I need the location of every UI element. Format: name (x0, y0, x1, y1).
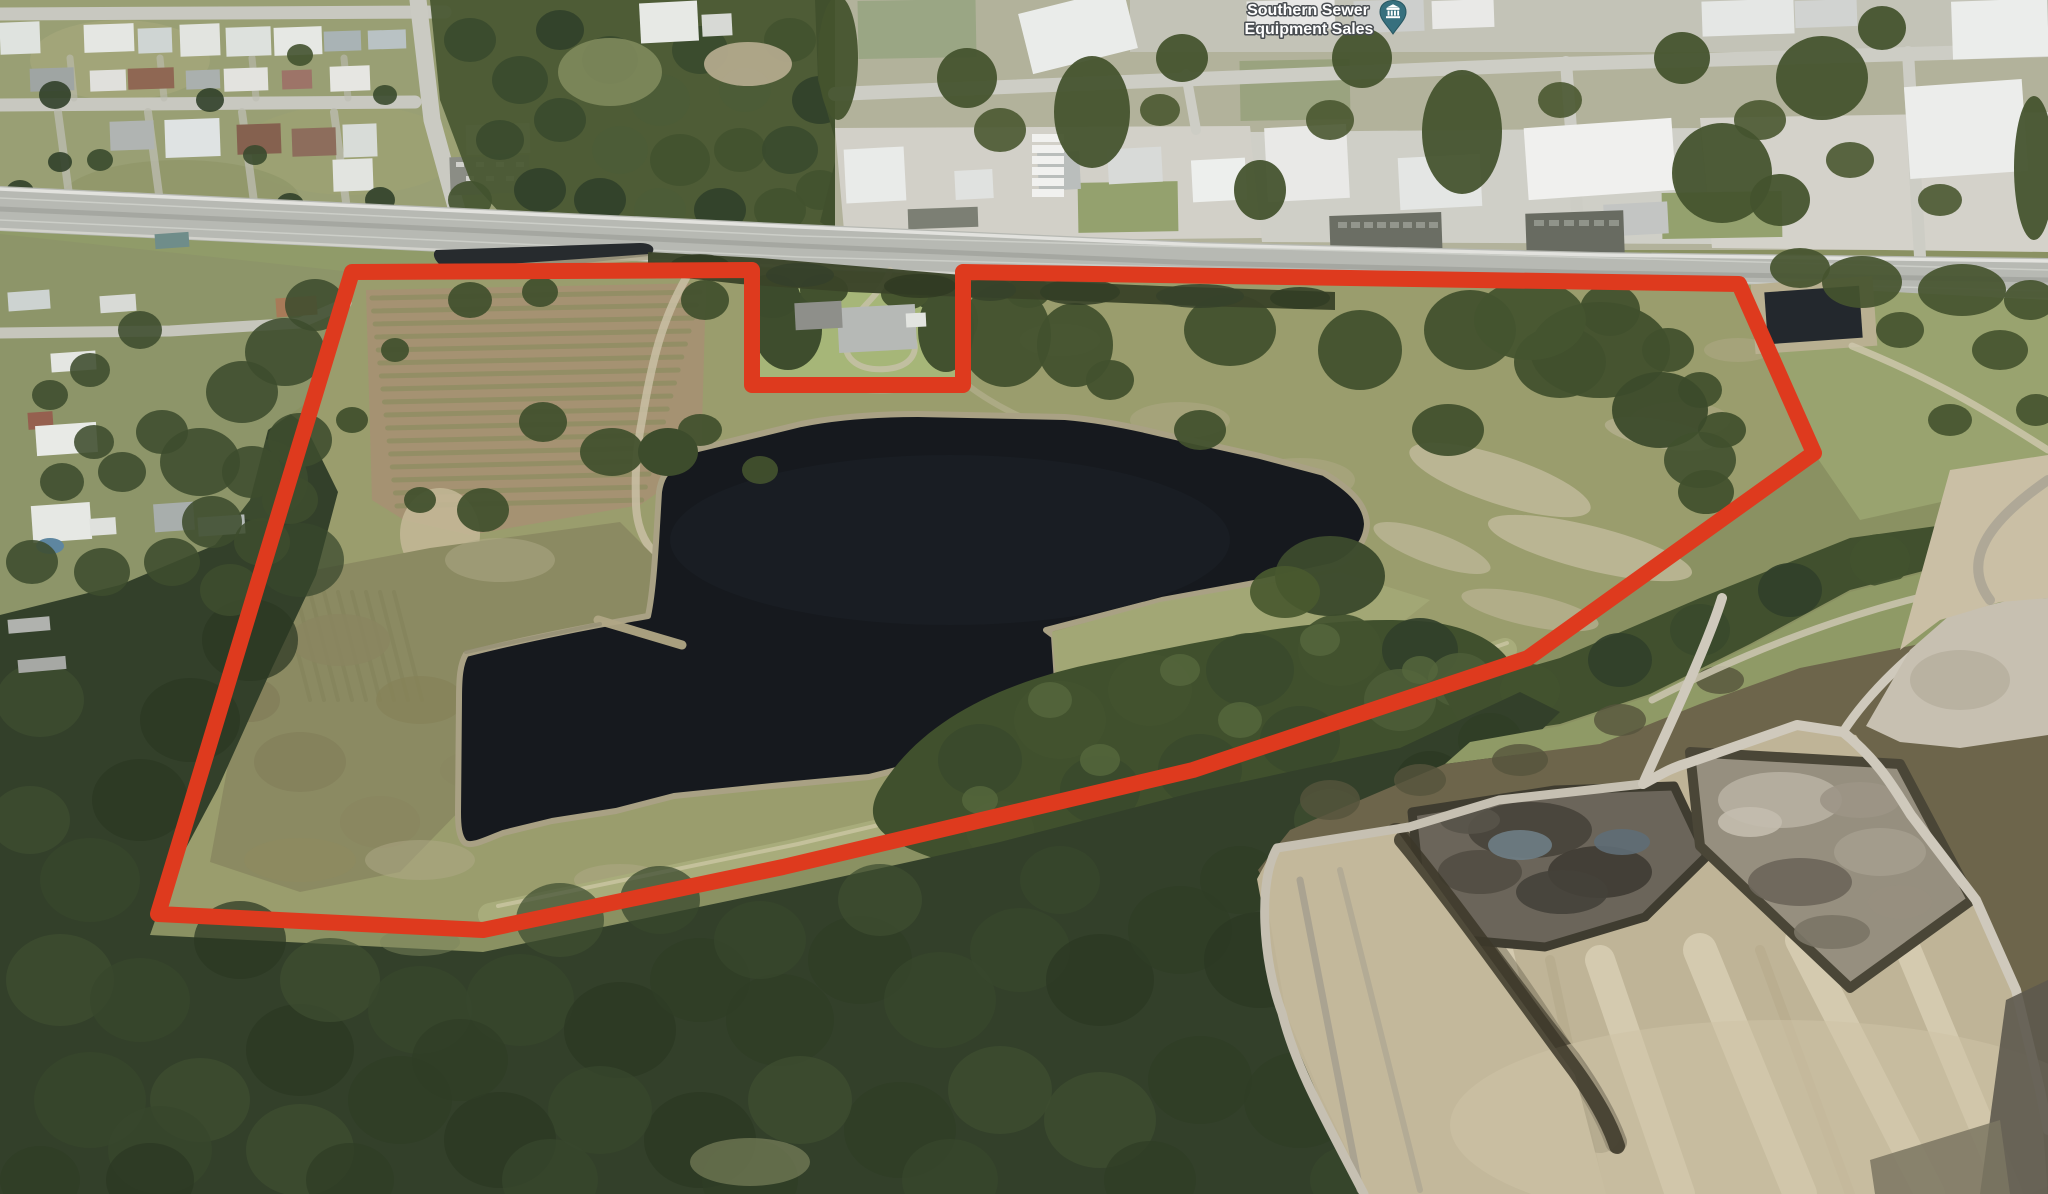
svg-text:Southern Sewer: Southern Sewer (1247, 2, 1369, 19)
svg-text:Equipment Sales: Equipment Sales (1245, 21, 1374, 38)
